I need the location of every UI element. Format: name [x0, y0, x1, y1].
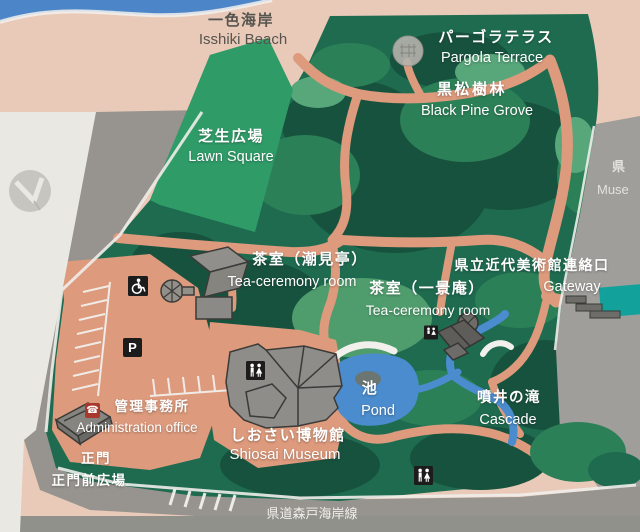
shiosai-museum-building — [226, 344, 342, 428]
label-main-gate-plaza: 正門前広場 — [52, 474, 127, 488]
park-map-sign: P — [0, 0, 640, 532]
restroom-icon-museum — [246, 361, 265, 380]
pergola-terrace-icon — [393, 36, 423, 66]
parking-icon: P — [123, 338, 142, 357]
label-tea-room-shiomitei-ja: 茶室（潮見亭） — [252, 252, 368, 267]
label-admin-office-ja: 管理事務所 — [115, 400, 190, 414]
restroom-icon-ikkeian — [424, 325, 438, 340]
prefecture-logo-icon — [9, 170, 51, 212]
label-tea-room-ikkeian-ja: 茶室（一景庵） — [369, 281, 485, 296]
phone-icon-glyph: ☎ — [86, 405, 98, 416]
label-art-museum-ja-partial: 県 — [612, 160, 627, 173]
label-lawn-square-ja: 芝生広場 — [198, 129, 264, 144]
label-pond-en: Pond — [361, 404, 395, 419]
wheelchair-icon — [128, 276, 148, 296]
restroom-icon-south — [414, 466, 433, 485]
label-tea-room-ikkeian-en: Tea-ceremony room — [366, 303, 491, 317]
label-lawn-square-en: Lawn Square — [188, 150, 273, 165]
label-pargola-terrace-en: Pargola Terrace — [441, 51, 543, 66]
label-art-museum-en-partial: Muse — [597, 183, 629, 196]
label-black-pine-grove-en: Black Pine Grove — [421, 104, 533, 119]
label-pargola-terrace-ja: パーゴラテラス — [438, 30, 553, 45]
label-cascade-en: Cascade — [479, 413, 536, 428]
phone-icon: ☎ — [85, 403, 100, 418]
label-isshiki-beach-ja: 一色海岸 — [208, 13, 274, 28]
label-tea-room-shiomitei-en: Tea-ceremony room — [228, 275, 357, 290]
label-shiosai-museum-ja: しおさい博物館 — [230, 428, 346, 443]
label-museum-gateway-en: Gateway — [543, 280, 600, 295]
label-main-gate: 正門 — [81, 452, 111, 466]
label-admin-office-en: Administration office — [76, 421, 197, 435]
label-shiosai-museum-en: Shiosai Museum — [230, 447, 341, 462]
label-black-pine-grove-ja: 黒松樹林 — [437, 82, 507, 97]
parking-icon-glyph: P — [128, 340, 137, 355]
label-prefectural-road: 県道森戸海岸線 — [266, 507, 357, 520]
label-cascade-ja: 噴井の滝 — [477, 391, 541, 406]
label-pond-ja: 池 — [362, 381, 379, 396]
label-isshiki-beach-en: Isshiki Beach — [199, 32, 287, 47]
label-museum-gateway-ja: 県立近代美術館連絡口 — [455, 258, 610, 272]
